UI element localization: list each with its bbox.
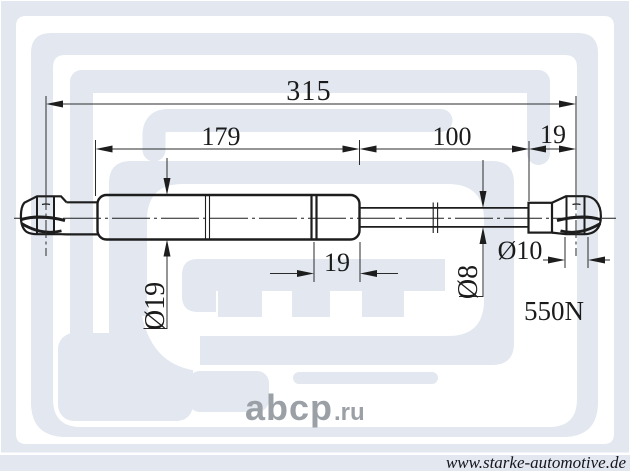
svg-text:.ru: .ru <box>334 399 365 426</box>
svg-text:abcp: abcp <box>245 387 333 428</box>
svg-text:19: 19 <box>324 248 350 277</box>
svg-text:Ø8: Ø8 <box>453 265 484 299</box>
svg-text:Ø19: Ø19 <box>140 282 171 330</box>
svg-text:100: 100 <box>433 122 472 151</box>
svg-text:315: 315 <box>286 76 332 107</box>
svg-text:Ø10: Ø10 <box>498 236 543 265</box>
svg-text:19: 19 <box>540 120 566 149</box>
svg-text:550N: 550N <box>524 296 584 326</box>
svg-text:179: 179 <box>202 122 241 151</box>
svg-text:www.starke-automotive.de: www.starke-automotive.de <box>446 453 626 471</box>
